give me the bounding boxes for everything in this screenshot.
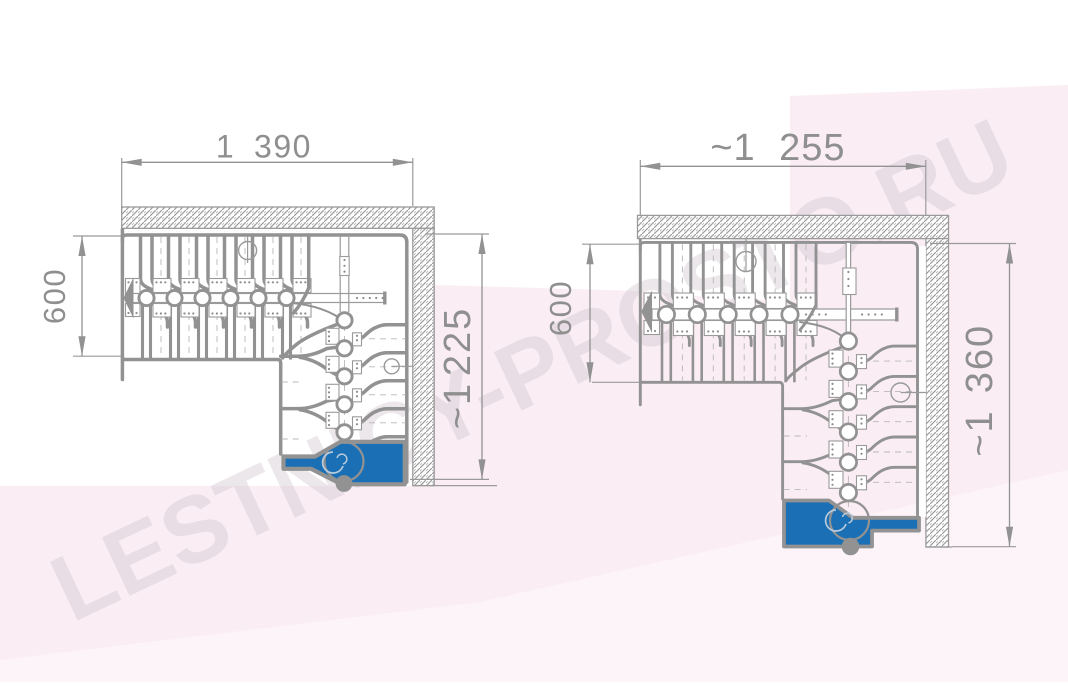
svg-text:360: 360 <box>959 324 1001 393</box>
svg-text:255: 255 <box>779 127 845 169</box>
svg-text:390: 390 <box>254 129 312 165</box>
svg-text:~1: ~1 <box>437 382 479 429</box>
svg-text:600: 600 <box>543 280 578 336</box>
svg-text:~1: ~1 <box>710 127 755 169</box>
svg-text:600: 600 <box>37 268 72 324</box>
svg-text:225: 225 <box>437 307 479 376</box>
svg-text:~1: ~1 <box>959 409 1001 456</box>
svg-text:1: 1 <box>216 129 235 165</box>
